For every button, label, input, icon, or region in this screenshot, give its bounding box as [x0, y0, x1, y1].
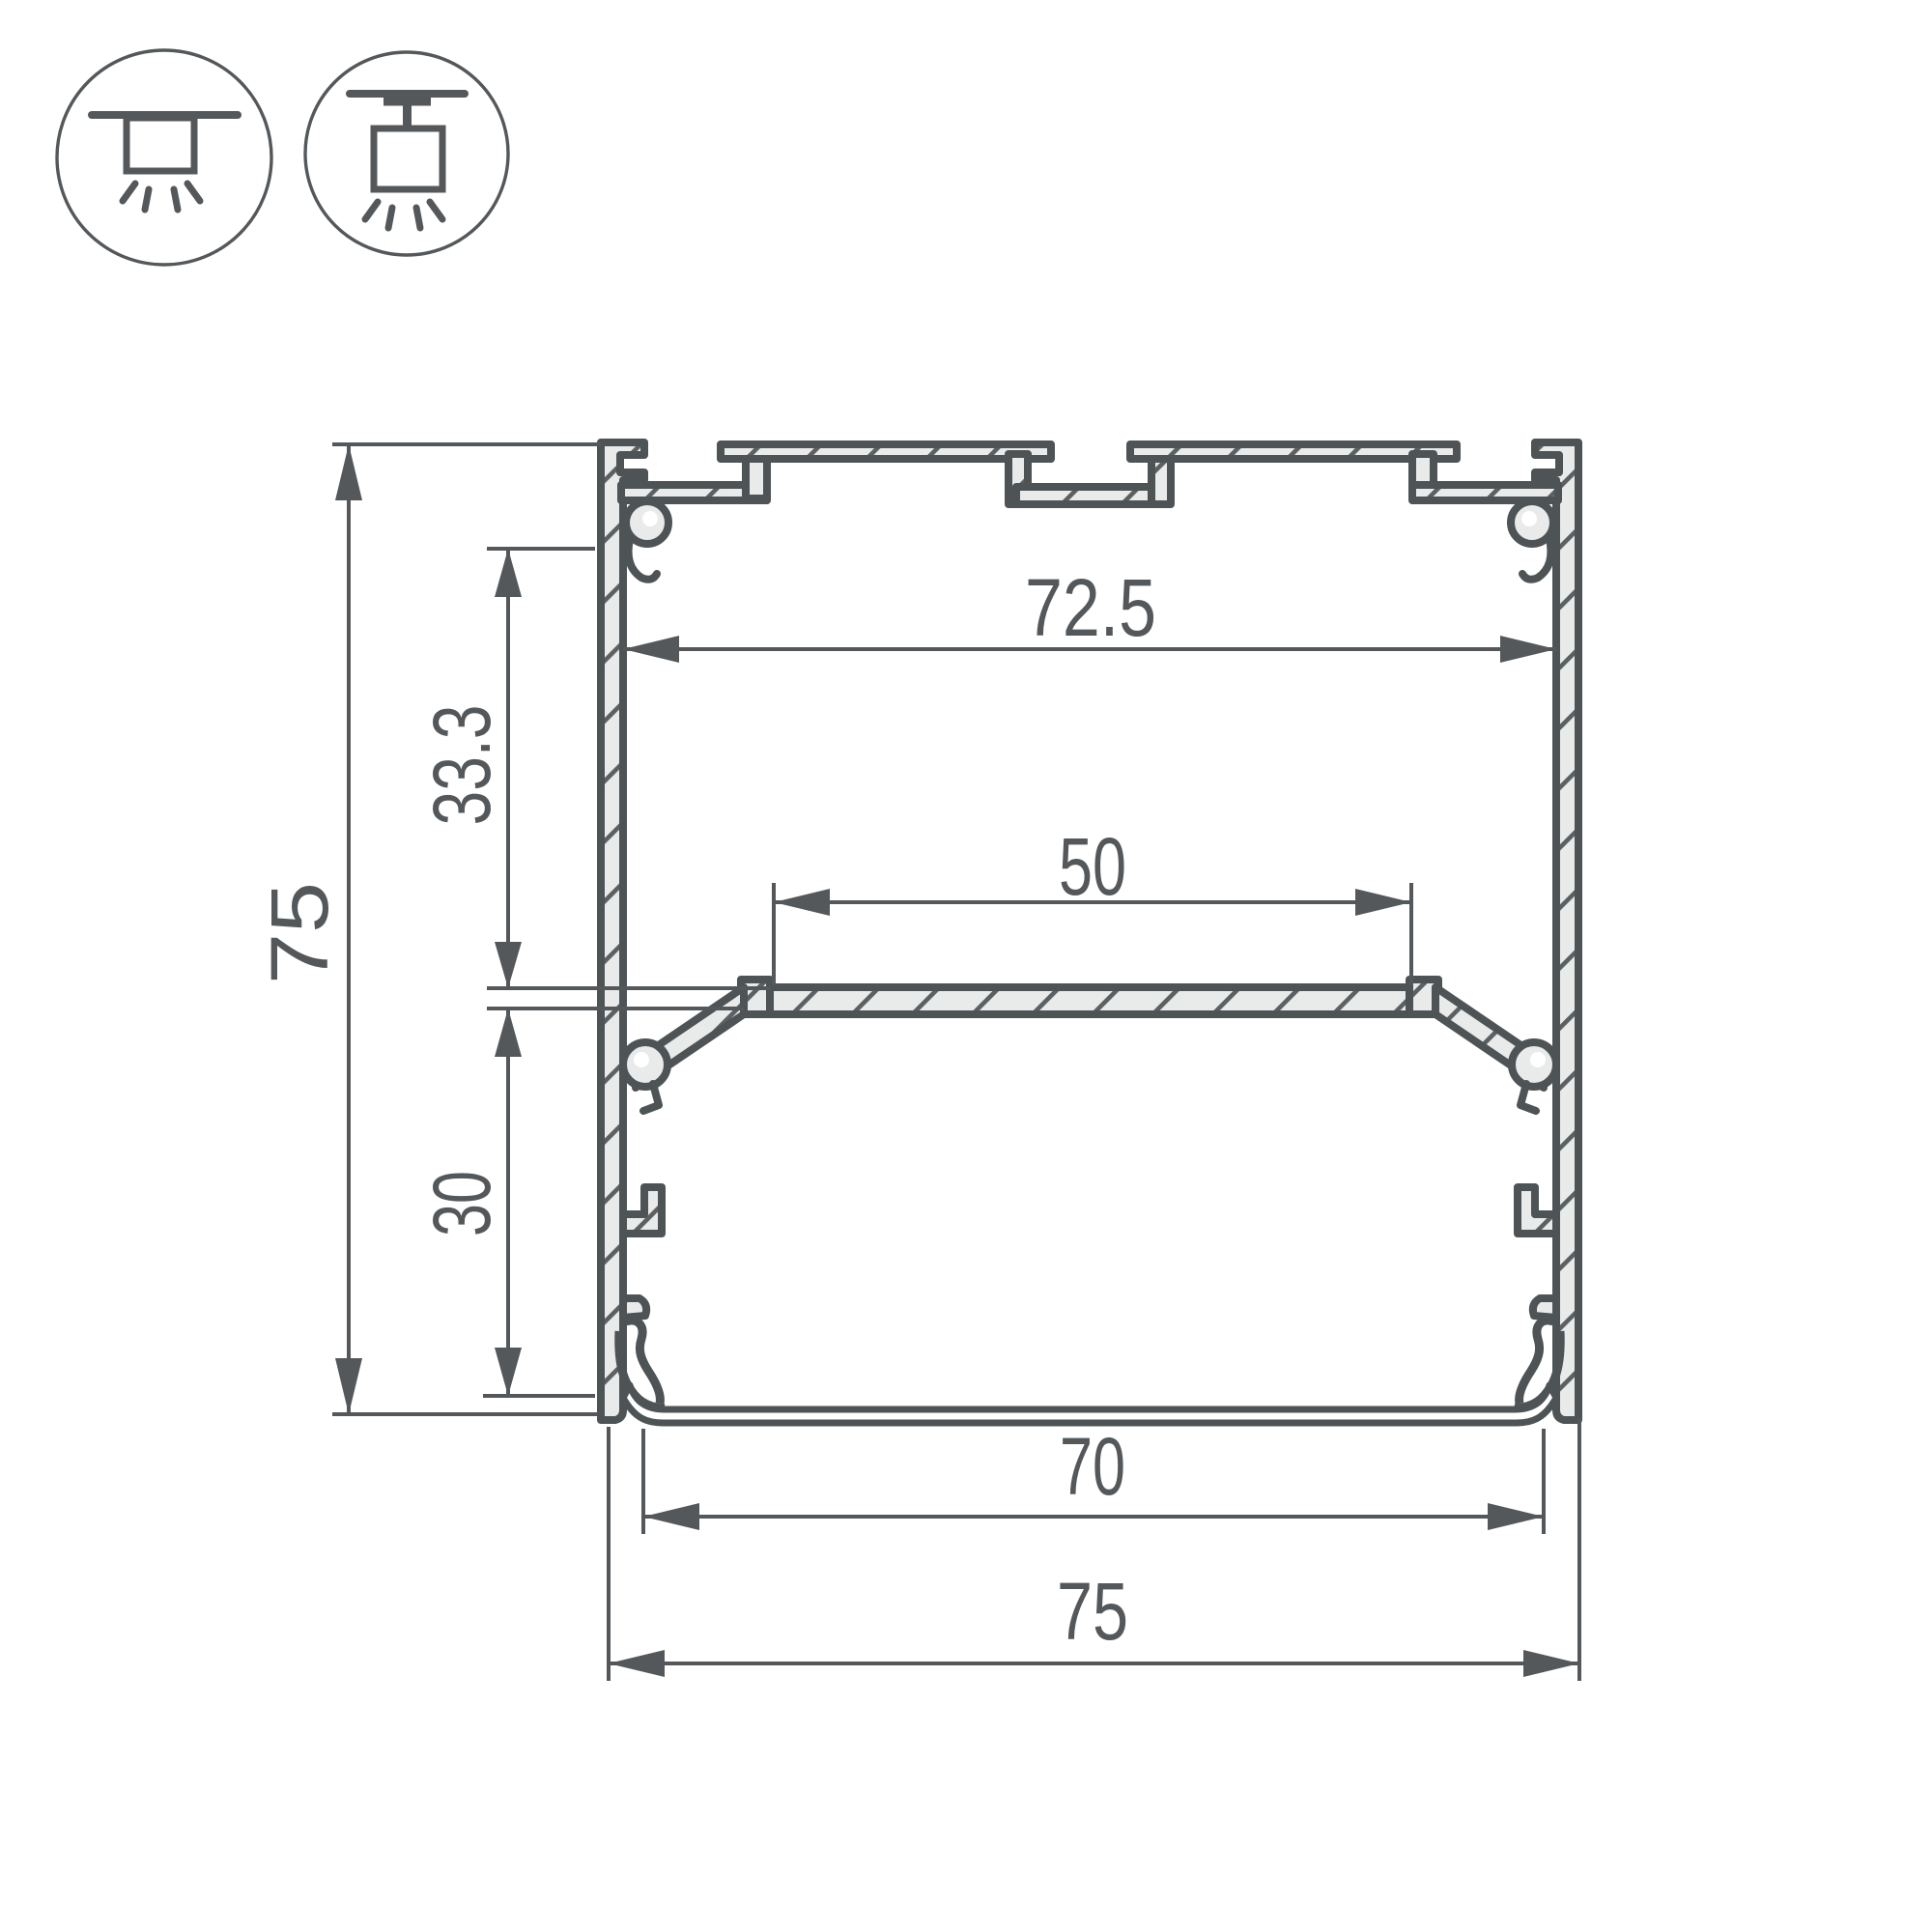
svg-text:70: 70 — [1060, 1421, 1125, 1512]
svg-text:75: 75 — [254, 882, 345, 984]
svg-text:50: 50 — [1059, 821, 1126, 912]
svg-text:33.3: 33.3 — [416, 705, 507, 826]
svg-text:72.5: 72.5 — [1025, 562, 1156, 653]
svg-text:30: 30 — [416, 1171, 507, 1236]
svg-text:75: 75 — [1057, 1566, 1128, 1657]
